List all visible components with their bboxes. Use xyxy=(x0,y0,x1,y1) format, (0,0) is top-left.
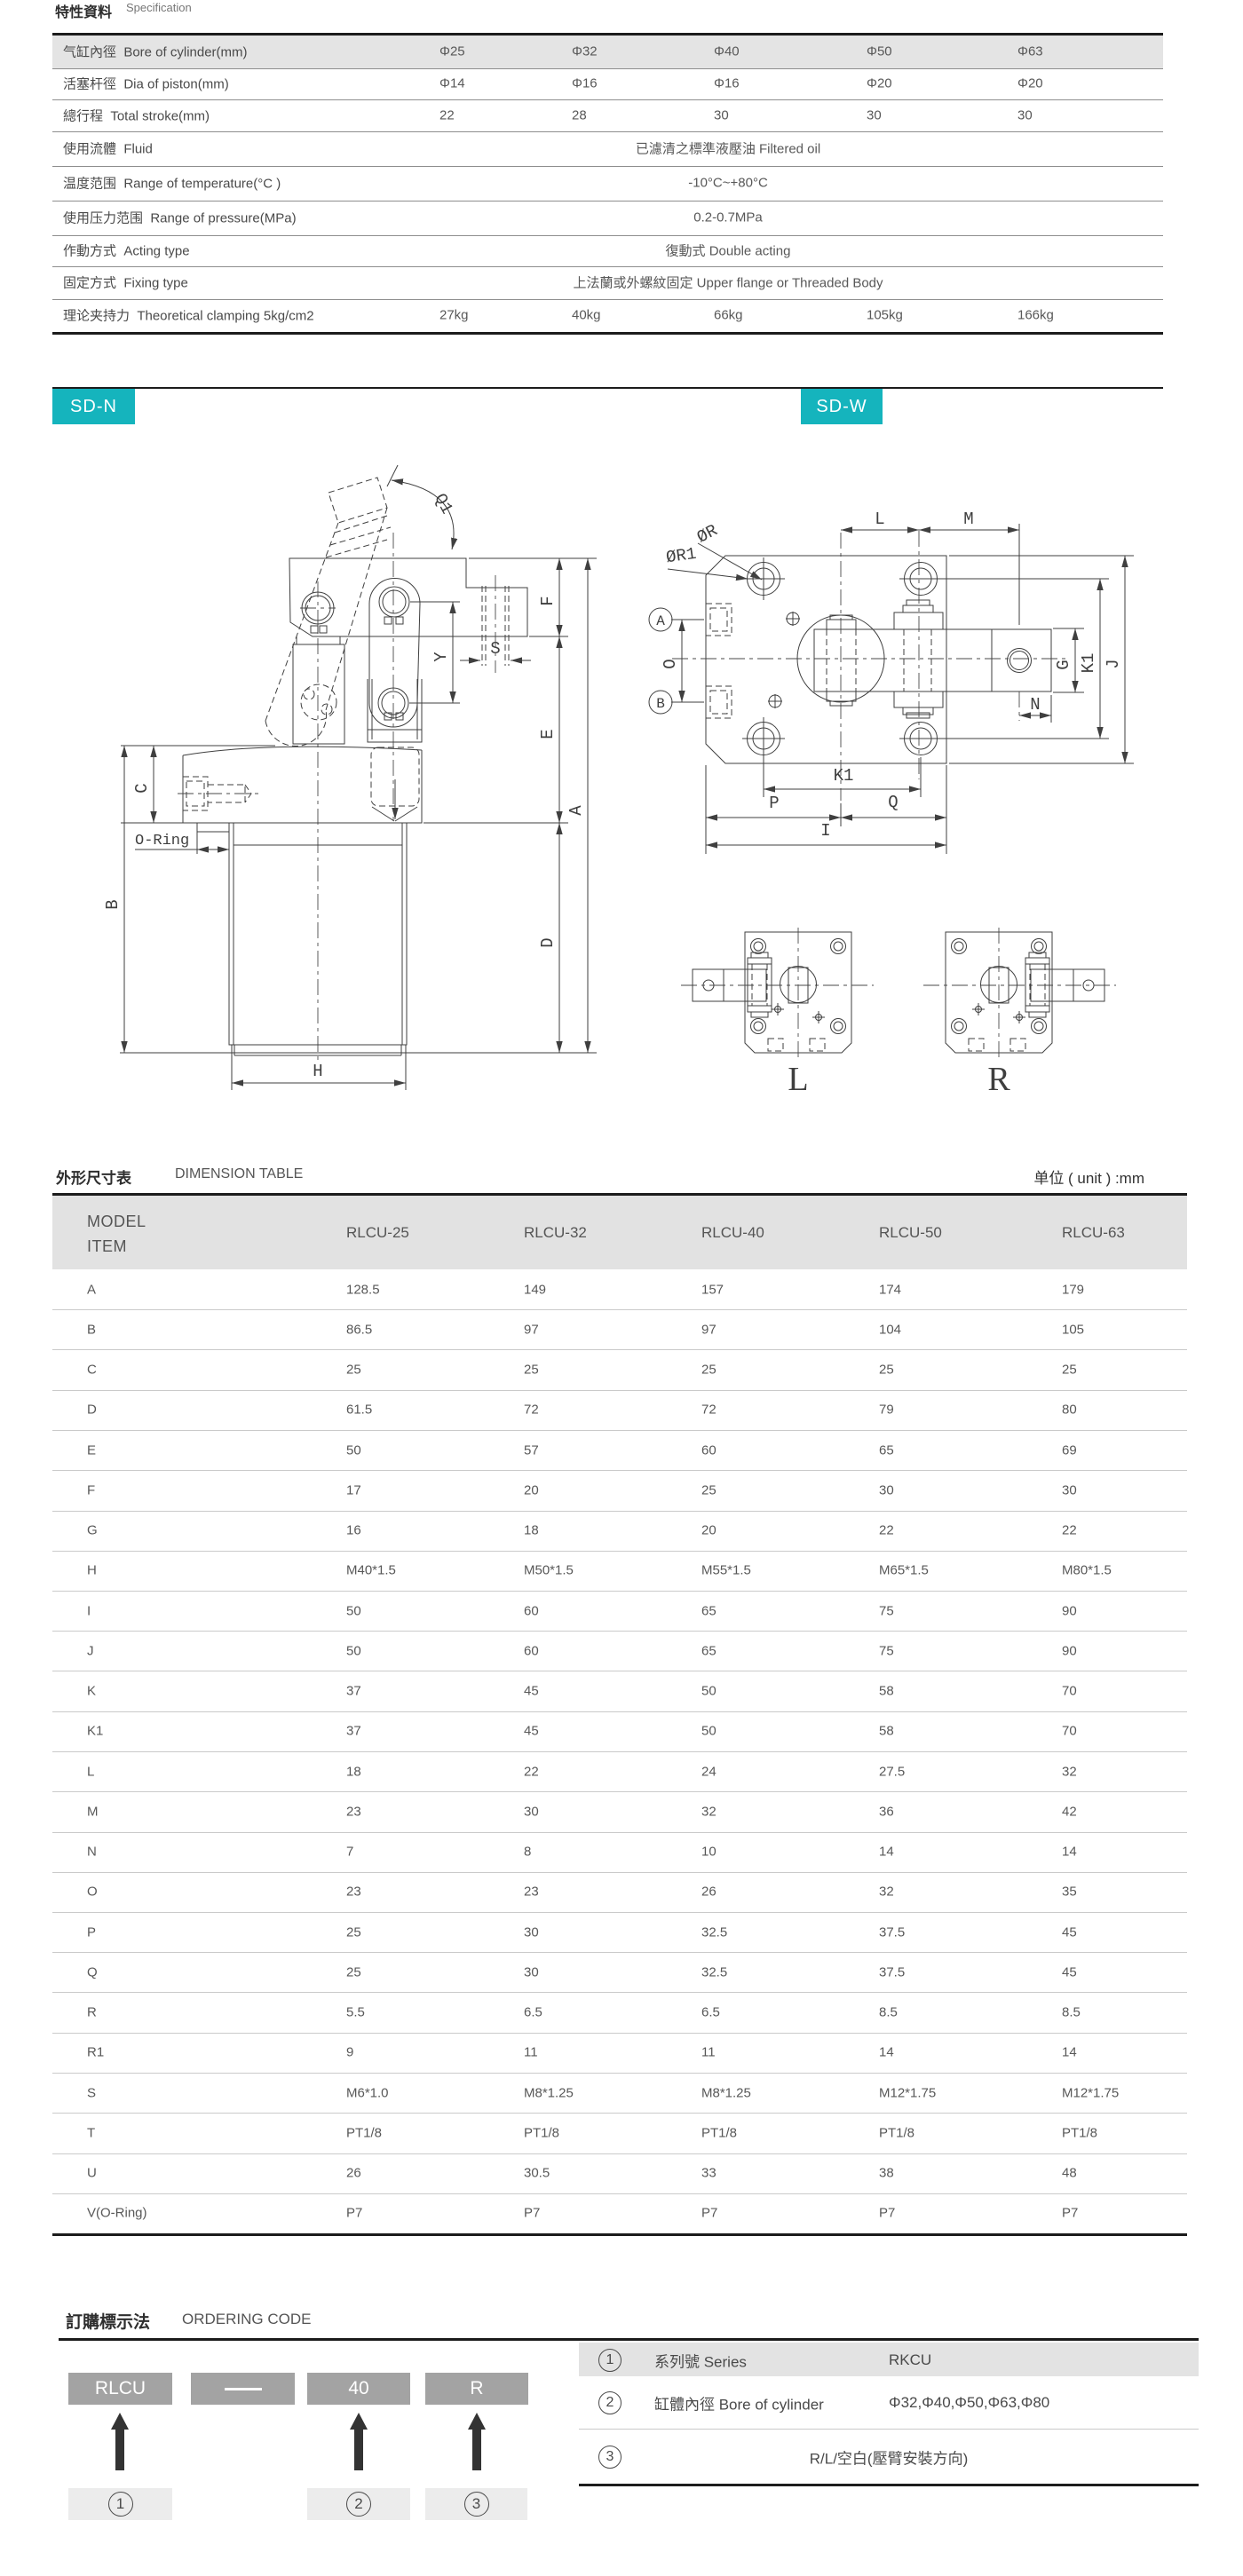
svg-text:Y: Y xyxy=(431,652,451,662)
svg-text:O-Ring: O-Ring xyxy=(135,833,189,849)
svg-text:J: J xyxy=(1104,659,1123,668)
svg-text:S: S xyxy=(490,639,500,659)
svg-text:Q: Q xyxy=(888,793,898,812)
svg-text:I: I xyxy=(820,821,830,841)
svg-text:B: B xyxy=(103,899,123,909)
svg-text:M: M xyxy=(963,510,973,529)
svg-text:A: A xyxy=(566,805,586,816)
svg-text:E: E xyxy=(538,729,558,739)
svg-text:ØR1: ØR1 xyxy=(665,544,698,568)
svg-text:O: O xyxy=(661,659,680,668)
svg-text:L: L xyxy=(875,510,884,529)
svg-text:A: A xyxy=(656,613,665,629)
svg-text:R: R xyxy=(987,1061,1010,1098)
svg-text:L: L xyxy=(788,1061,808,1098)
svg-text:C: C xyxy=(132,783,152,793)
svg-text:G: G xyxy=(1054,660,1073,669)
svg-text:P: P xyxy=(769,794,779,813)
svg-text:K1: K1 xyxy=(1079,653,1098,674)
svg-text:D: D xyxy=(538,937,558,947)
svg-text:H: H xyxy=(313,1062,322,1081)
svg-text:B: B xyxy=(656,696,665,712)
svg-text:K1: K1 xyxy=(834,766,854,786)
svg-text:F: F xyxy=(538,596,558,605)
svg-text:N: N xyxy=(1030,695,1040,715)
